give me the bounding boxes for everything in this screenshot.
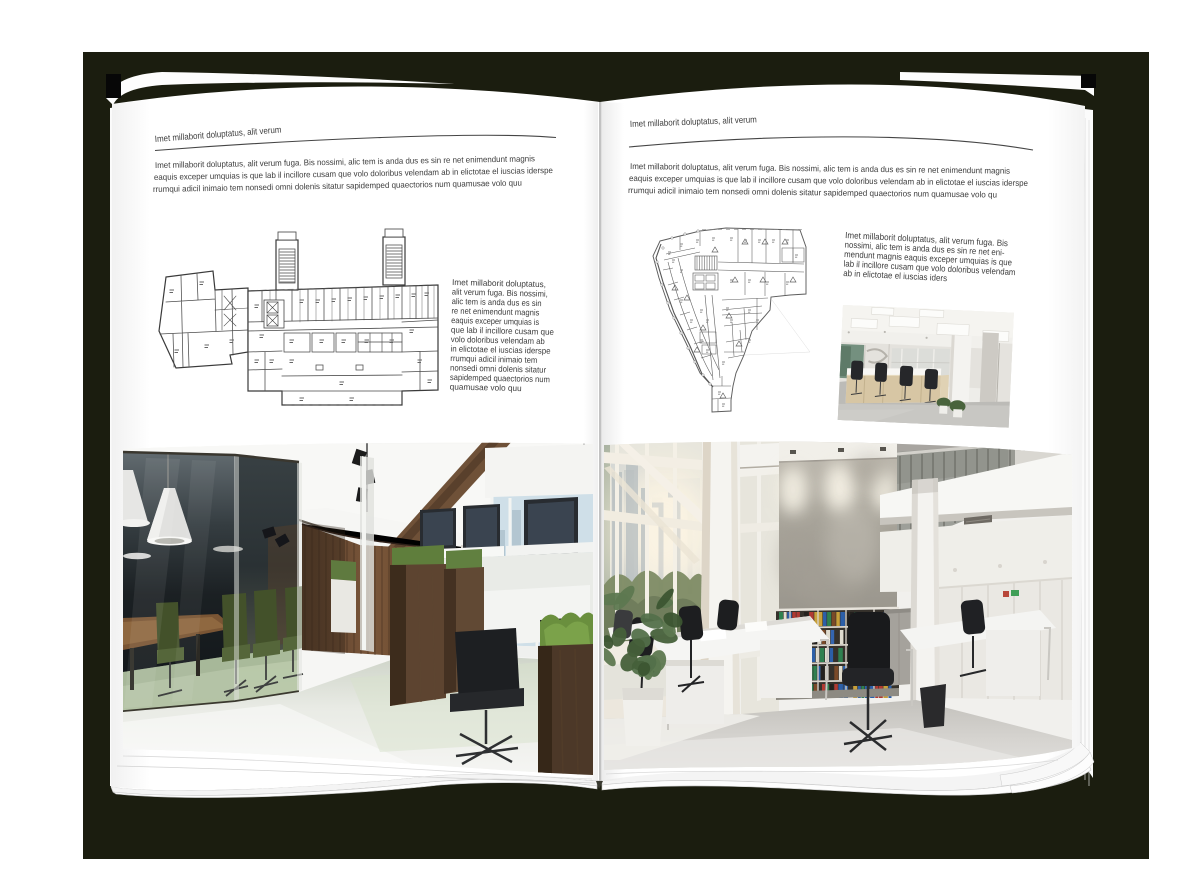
svg-text:quamusae volo quu: quamusae volo quu [450,381,523,393]
